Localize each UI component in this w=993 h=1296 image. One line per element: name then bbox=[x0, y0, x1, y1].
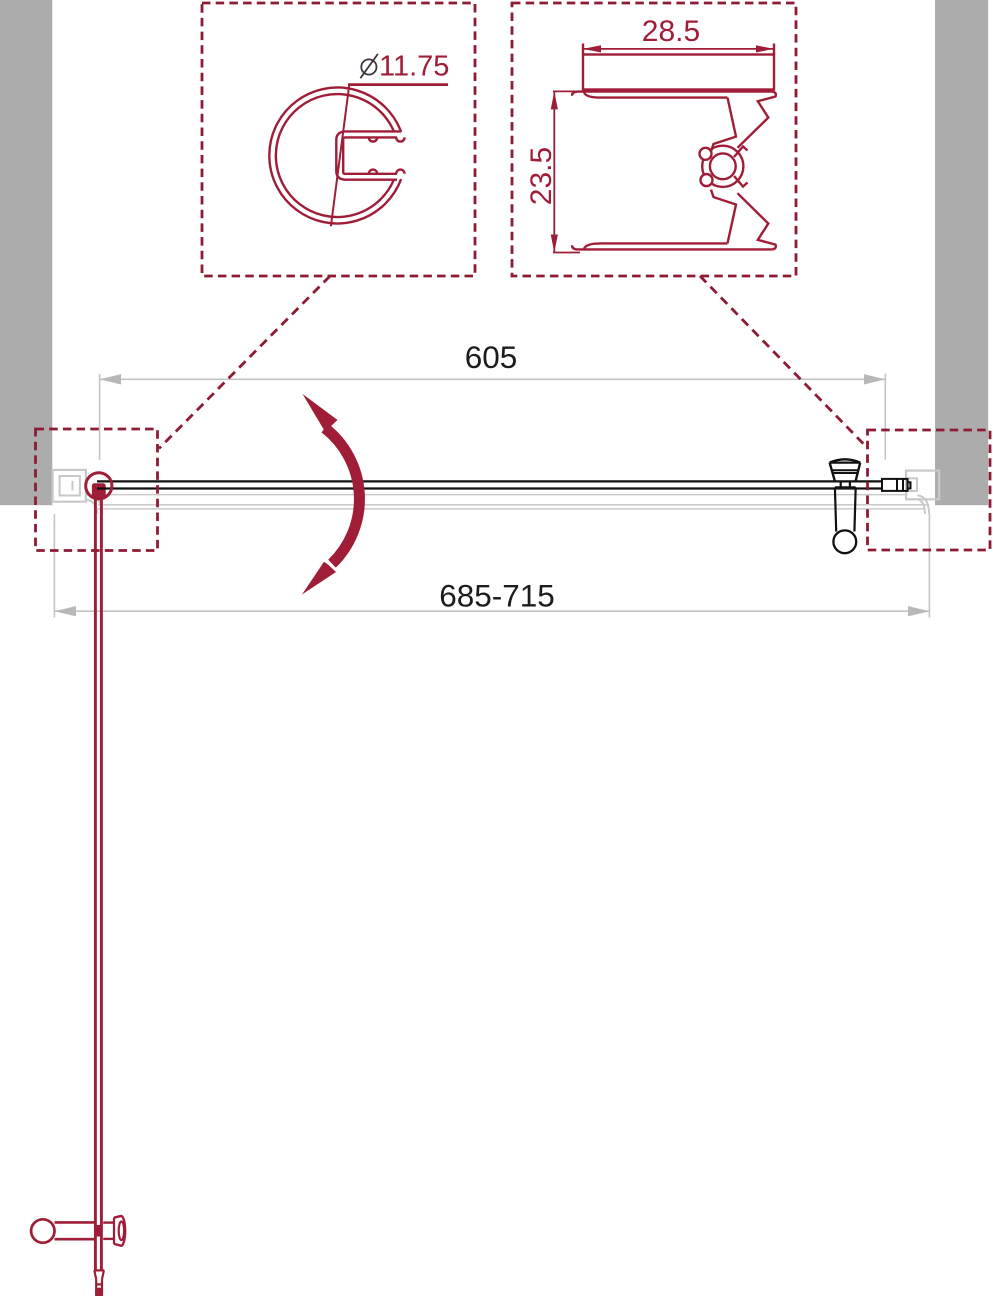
svg-text:28.5: 28.5 bbox=[642, 15, 700, 48]
svg-text:23.5: 23.5 bbox=[525, 147, 558, 205]
svg-text:605: 605 bbox=[465, 339, 518, 375]
svg-text:685-715: 685-715 bbox=[439, 578, 555, 614]
svg-text:11.75: 11.75 bbox=[379, 51, 449, 83]
